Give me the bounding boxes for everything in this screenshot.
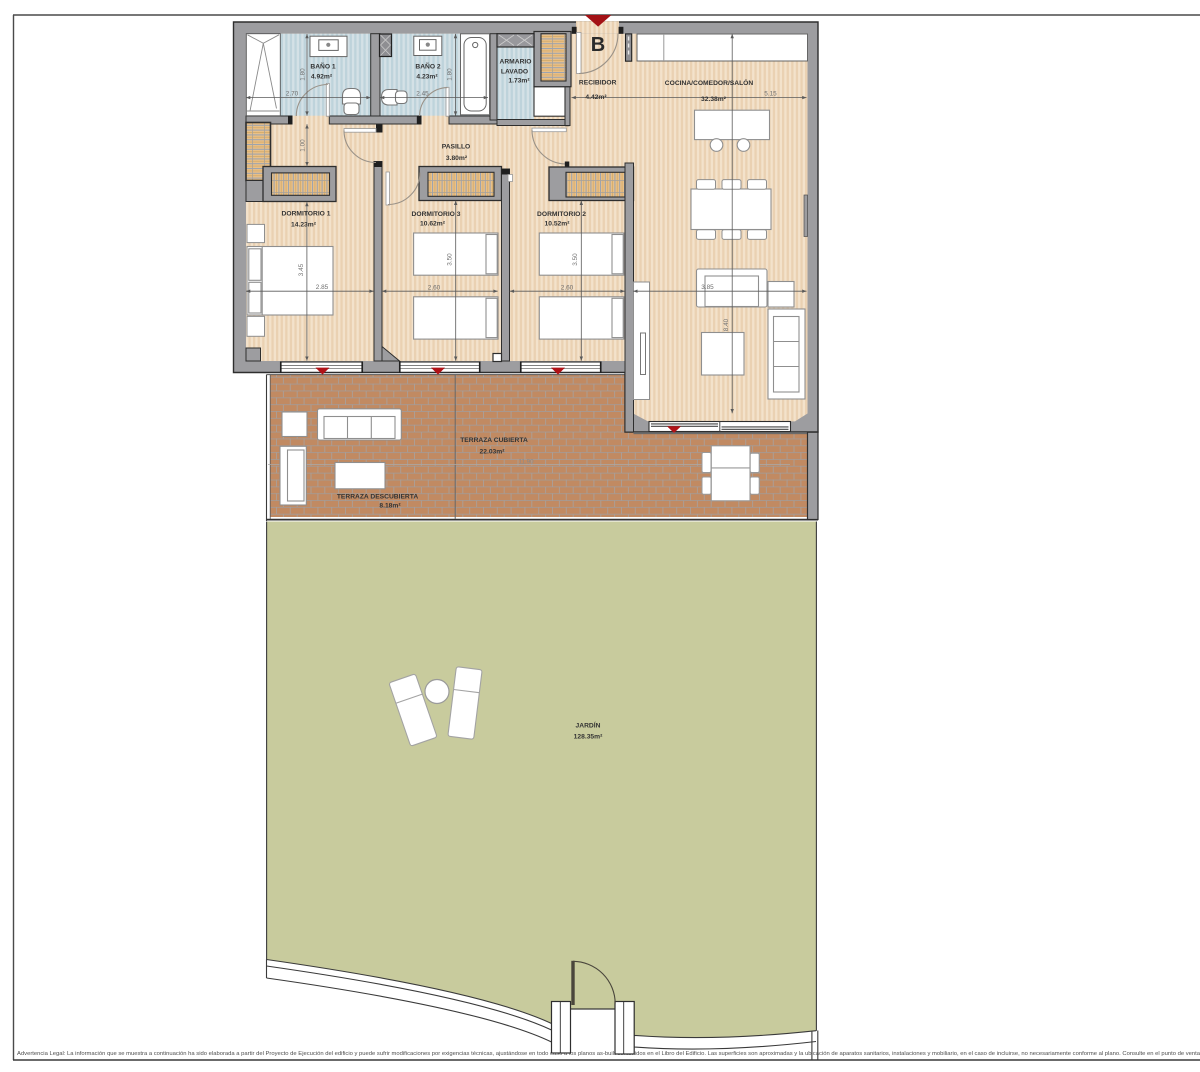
svg-text:2.85: 2.85: [316, 284, 329, 291]
svg-text:1.00: 1.00: [300, 139, 307, 152]
svg-text:B: B: [591, 34, 605, 56]
svg-text:2.60: 2.60: [561, 285, 574, 292]
svg-text:8.18m²: 8.18m²: [379, 502, 401, 509]
svg-text:4.42m²: 4.42m²: [585, 94, 607, 101]
svg-text:DORMITORIO 3: DORMITORIO 3: [412, 211, 461, 218]
svg-text:TERRAZA DESCUBIERTA: TERRAZA DESCUBIERTA: [337, 494, 419, 501]
svg-text:11.90: 11.90: [518, 458, 534, 465]
svg-text:10.52m²: 10.52m²: [545, 221, 571, 228]
svg-text:COCINA/COMEDOR/SALÓN: COCINA/COMEDOR/SALÓN: [665, 78, 754, 87]
svg-text:JARDÍN: JARDÍN: [576, 721, 601, 730]
svg-text:DORMITORIO 2: DORMITORIO 2: [537, 211, 586, 218]
svg-text:2.70: 2.70: [286, 90, 299, 97]
svg-text:3.80m²: 3.80m²: [446, 155, 468, 162]
svg-text:3.85: 3.85: [701, 284, 714, 291]
svg-text:PASILLO: PASILLO: [442, 143, 470, 150]
svg-text:BAÑO 1: BAÑO 1: [310, 62, 336, 71]
svg-text:32.38m²: 32.38m²: [701, 96, 727, 103]
svg-text:ARMARIO: ARMARIO: [500, 59, 532, 66]
svg-text:8.40: 8.40: [723, 318, 730, 331]
svg-text:3.45: 3.45: [298, 263, 305, 276]
svg-text:RECIBIDOR: RECIBIDOR: [579, 79, 617, 86]
svg-text:5.15: 5.15: [764, 91, 777, 98]
svg-text:22.03m²: 22.03m²: [480, 449, 506, 456]
svg-text:3.50: 3.50: [447, 253, 454, 266]
svg-text:1.80: 1.80: [300, 68, 307, 81]
svg-text:1.80: 1.80: [446, 68, 453, 81]
svg-text:10.62m²: 10.62m²: [420, 221, 446, 228]
svg-text:1.73m²: 1.73m²: [508, 78, 530, 85]
svg-text:14.23m²: 14.23m²: [291, 222, 317, 229]
svg-text:4.92m²: 4.92m²: [311, 73, 333, 80]
svg-text:2.60: 2.60: [428, 285, 441, 292]
svg-text:4.23m²: 4.23m²: [416, 73, 438, 80]
svg-text:DORMITORIO 1: DORMITORIO 1: [282, 210, 331, 217]
svg-text:TERRAZA CUBIERTA: TERRAZA CUBIERTA: [460, 437, 528, 444]
svg-text:BAÑO 2: BAÑO 2: [415, 62, 441, 71]
svg-text:LAVADO: LAVADO: [501, 69, 528, 76]
svg-text:Advertencia Legal: La informac: Advertencia Legal: La información que se…: [17, 1051, 1200, 1057]
svg-text:3.50: 3.50: [572, 253, 579, 266]
svg-text:2.45: 2.45: [416, 91, 429, 98]
svg-text:128.35m²: 128.35m²: [574, 734, 603, 741]
